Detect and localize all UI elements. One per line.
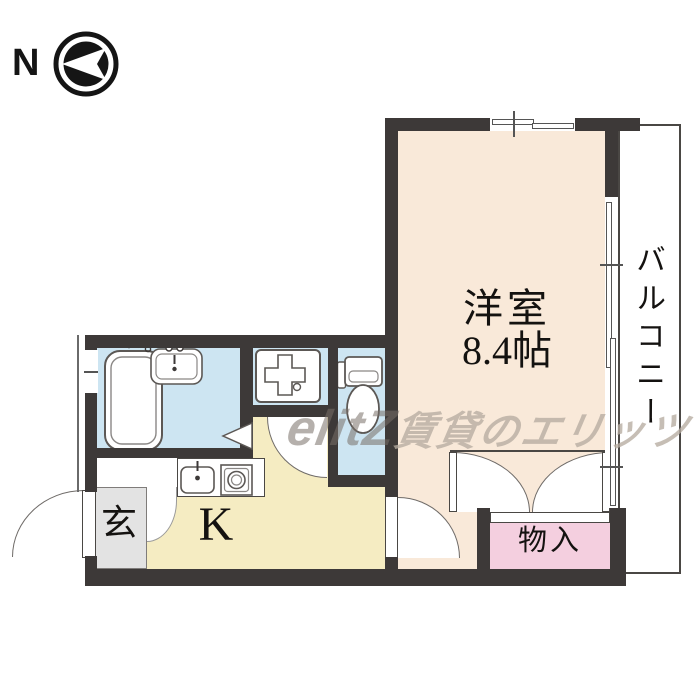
wall-closet-left — [477, 508, 490, 569]
wall-bottom — [85, 569, 626, 586]
window-tick — [600, 466, 623, 468]
bathroom-door-arrow-icon — [220, 421, 254, 451]
watermark-logo: elitZ — [283, 400, 401, 456]
entrance-door-swing — [12, 490, 84, 557]
compass-arrow-icon — [50, 28, 122, 100]
watermark-text: 賃貸のエリッツ — [391, 410, 693, 454]
wall-door-sill — [385, 557, 398, 569]
wall-right-upper — [605, 131, 618, 197]
closet-door-track — [490, 512, 610, 523]
compass-north-label: N — [12, 42, 39, 85]
mainroom-door-panel — [385, 495, 398, 559]
closet-door-panel-left — [449, 452, 457, 512]
window-tick — [513, 111, 515, 137]
washing-machine-pan-icon — [253, 347, 325, 405]
eaves-line — [77, 335, 79, 492]
kitchen-label: K — [186, 501, 246, 549]
storage-label: 物入 — [490, 527, 610, 556]
window-pane — [532, 123, 574, 129]
main-room-label: 洋室 — [437, 289, 577, 329]
kitchen-sink-stove-icons — [177, 458, 265, 498]
entrance-label: 玄 — [93, 505, 145, 541]
watermark: elitZ賃貸のエリッツ — [283, 399, 695, 457]
main-room-size: 8.4帖 — [437, 331, 577, 371]
window-tick — [84, 371, 98, 373]
wall-toilet-bottom — [328, 475, 392, 487]
floorplan-canvas: N 洋室 8.4帖 K 玄 物入 バルコニー elitZ賃貸のエリッツ — [0, 0, 700, 700]
washbasin-icon — [150, 344, 204, 386]
window-tick — [600, 264, 623, 266]
